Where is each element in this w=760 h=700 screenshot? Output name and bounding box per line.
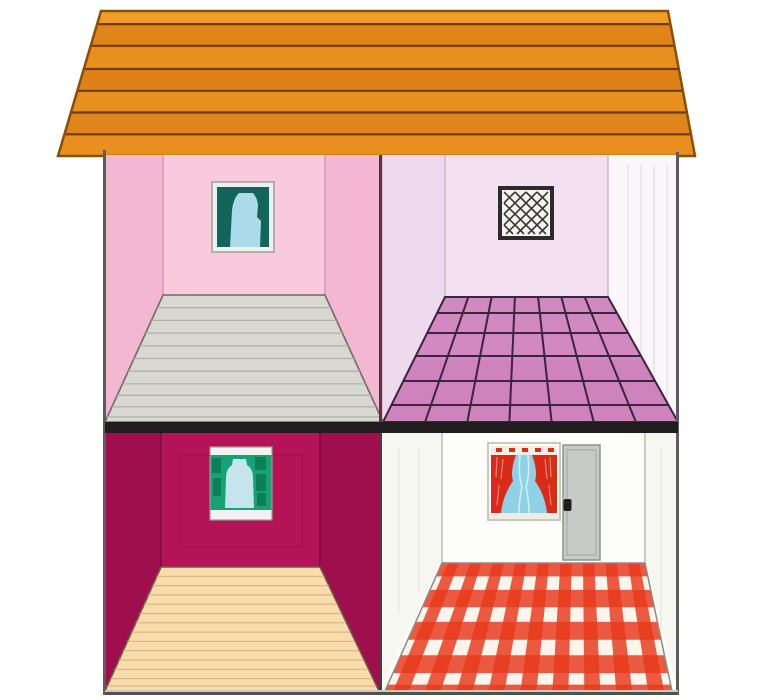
room-top-left [105, 155, 383, 422]
foliage-blob [255, 457, 266, 470]
roof-plank [58, 134, 695, 156]
window-frame-top [210, 447, 272, 455]
foliage-blob [212, 458, 221, 473]
door-knob [564, 499, 572, 511]
valance-mark [548, 448, 554, 452]
roof-plank [65, 113, 692, 135]
base-strip-dark [105, 692, 678, 695]
room-bottom-left [105, 433, 379, 691]
gingham-stripe [393, 655, 668, 673]
valance-mark [496, 448, 502, 452]
valance-mark [522, 448, 528, 452]
gingham-stripe [436, 563, 648, 576]
gingham-stripe [408, 622, 661, 640]
roof-plank [97, 11, 670, 24]
foliage-blob [213, 478, 221, 496]
window-frame-bottom [210, 510, 272, 520]
door [563, 445, 600, 560]
dollhouse-illustration [0, 0, 760, 700]
roof-plank [91, 24, 675, 46]
foliage-blob [256, 474, 266, 491]
window-top-left [212, 182, 274, 252]
floor-divider [105, 422, 678, 433]
window-sill [488, 513, 560, 520]
roof-plank [71, 91, 687, 113]
gingham-stripe [422, 590, 654, 607]
valance-mark [509, 448, 515, 452]
tile-sheen [413, 297, 643, 360]
foliage-blob [257, 493, 266, 506]
window-top-right [500, 188, 552, 238]
room-top-right [383, 155, 678, 422]
roof-plank [84, 46, 679, 69]
window-curtain [230, 193, 261, 247]
roof-plank [77, 69, 683, 91]
valance-mark [535, 448, 541, 452]
window-bottom-left [210, 447, 272, 520]
roof [50, 0, 710, 162]
room-bottom-right [379, 433, 678, 691]
window-bottom-right [488, 443, 560, 520]
